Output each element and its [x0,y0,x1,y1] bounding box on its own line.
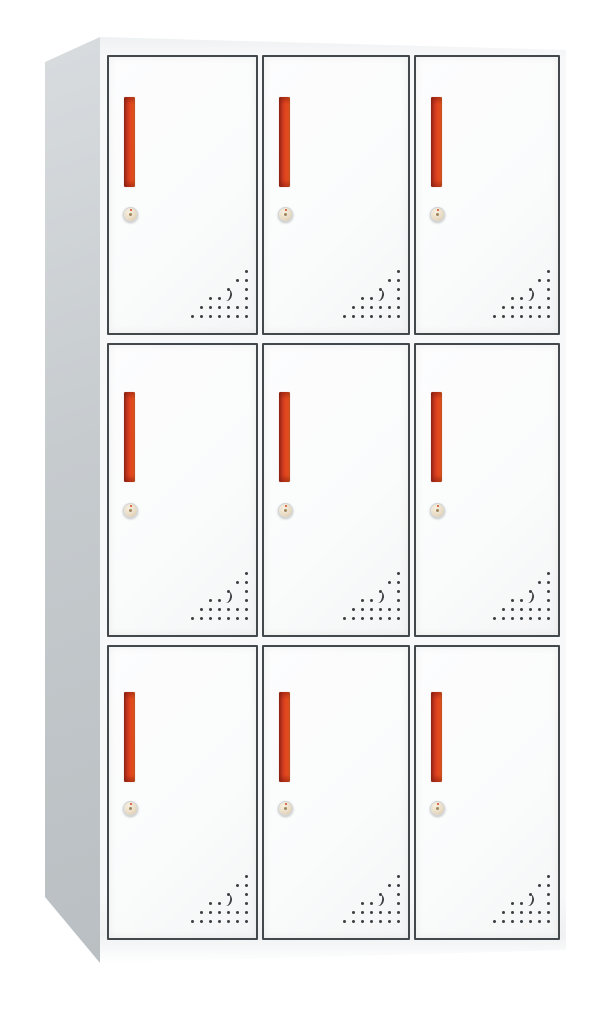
vent-hole-dot [397,893,400,896]
vent-hole-dot [370,617,373,620]
vent-hole-dot [520,920,523,923]
door-handle[interactable] [124,97,135,187]
vent-hole-dot [547,884,550,887]
lock-keyhole[interactable] [278,503,293,518]
vent-hole-dot [236,306,239,309]
vent-crescent-icon [221,288,233,302]
vent-hole-dot [547,288,550,291]
vent-hole-dot [547,270,550,273]
vent-hole-dot [511,306,514,309]
vent-hole-dot [538,617,541,620]
vent-hole-dot [227,315,230,318]
vent-hole-dot [245,590,248,593]
vent-hole-dot [209,920,212,923]
vent-hole-dot [538,884,541,887]
door-grid [0,0,605,1009]
vent-hole-dot [245,608,248,611]
lock-keyhole[interactable] [278,207,293,222]
vent-hole-dot [511,599,514,602]
vent-hole-dot [511,902,514,905]
vent-holes [343,875,400,926]
vent-hole-dot [218,911,221,914]
vent-crescent-icon [373,893,385,907]
locker-door-r1c3[interactable] [414,55,560,335]
vent-hole-dot [200,911,203,914]
locker-door-r1c1[interactable] [107,55,258,335]
vent-hole-dot [538,911,541,914]
vent-hole-dot [538,581,541,584]
vent-hole-dot [397,875,400,878]
vent-hole-dot [236,884,239,887]
vent-hole-dot [502,608,505,611]
vent-hole-dot [361,911,364,914]
vent-hole-dot [547,590,550,593]
vent-hole-dot [370,315,373,318]
vent-hole-dot [547,599,550,602]
vent-hole-dot [227,617,230,620]
vent-hole-dot [529,911,532,914]
vent-hole-dot [397,884,400,887]
vent-hole-dot [245,297,248,300]
vent-hole-dot [245,270,248,273]
vent-hole-dot [218,608,221,611]
vent-hole-dot [388,884,391,887]
vent-hole-dot [502,920,505,923]
vent-hole-dot [547,617,550,620]
vent-hole-dot [502,617,505,620]
vent-crescent-icon [523,893,535,907]
vent-holes [191,572,248,623]
vent-hole-dot [245,902,248,905]
vent-hole-dot [520,608,523,611]
vent-hole-dot [245,875,248,878]
vent-holes [493,875,550,926]
vent-hole-dot [547,315,550,318]
door-handle[interactable] [124,392,135,482]
vent-hole-dot [218,315,221,318]
vent-hole-dot [379,306,382,309]
vent-hole-dot [236,911,239,914]
vent-hole-dot [236,315,239,318]
vent-hole-dot [511,617,514,620]
door-handle[interactable] [279,692,290,782]
vent-hole-dot [361,315,364,318]
vent-hole-dot [245,572,248,575]
vent-hole-dot [379,920,382,923]
vent-hole-dot [361,306,364,309]
vent-hole-dot [520,911,523,914]
vent-hole-dot [388,911,391,914]
vent-hole-dot [547,902,550,905]
vent-hole-dot [397,581,400,584]
vent-holes [493,572,550,623]
vent-hole-dot [370,306,373,309]
vent-hole-dot [538,920,541,923]
door-handle[interactable] [124,692,135,782]
vent-hole-dot [200,617,203,620]
vent-hole-dot [520,902,523,905]
vent-hole-dot [209,306,212,309]
vent-hole-dot [209,617,212,620]
vent-hole-dot [245,599,248,602]
vent-hole-dot [547,875,550,878]
vent-hole-dot [379,617,382,620]
lock-keyhole[interactable] [430,503,445,518]
vent-hole-dot [352,306,355,309]
vent-hole-dot [520,599,523,602]
vent-hole-dot [493,617,496,620]
vent-hole-dot [370,297,373,300]
vent-hole-dot [388,315,391,318]
vent-hole-dot [502,306,505,309]
vent-hole-dot [236,581,239,584]
vent-hole-dot [200,306,203,309]
vent-hole-dot [379,315,382,318]
vent-holes [343,270,400,321]
locker-door-r2c3[interactable] [414,343,560,637]
vent-hole-dot [352,617,355,620]
vent-hole-dot [511,297,514,300]
vent-holes [493,270,550,321]
vent-hole-dot [538,608,541,611]
vent-hole-dot [397,911,400,914]
vent-hole-dot [245,920,248,923]
vent-hole-dot [361,617,364,620]
vent-hole-dot [245,288,248,291]
door-handle[interactable] [279,392,290,482]
vent-hole-dot [379,911,382,914]
door-handle[interactable] [431,692,442,782]
vent-hole-dot [236,279,239,282]
vent-hole-dot [218,617,221,620]
vent-hole-dot [397,288,400,291]
vent-hole-dot [397,590,400,593]
vent-hole-dot [343,315,346,318]
locker-door-r3c1[interactable] [107,645,258,940]
vent-hole-dot [218,599,221,602]
vent-hole-dot [397,279,400,282]
vent-hole-dot [520,297,523,300]
vent-hole-dot [361,902,364,905]
vent-hole-dot [227,911,230,914]
vent-hole-dot [388,279,391,282]
vent-hole-dot [200,920,203,923]
vent-holes [191,270,248,321]
vent-hole-dot [388,306,391,309]
vent-holes [191,875,248,926]
lock-keyhole[interactable] [430,207,445,222]
vent-crescent-icon [221,893,233,907]
vent-crescent-icon [373,590,385,604]
vent-hole-dot [529,306,532,309]
vent-hole-dot [218,306,221,309]
lock-keyhole[interactable] [278,801,293,816]
vent-hole-dot [529,617,532,620]
vent-hole-dot [209,911,212,914]
vent-hole-dot [218,297,221,300]
lock-keyhole[interactable] [123,503,138,518]
vent-hole-dot [388,617,391,620]
vent-hole-dot [236,920,239,923]
vent-hole-dot [538,306,541,309]
vent-holes [343,572,400,623]
vent-hole-dot [370,911,373,914]
vent-hole-dot [209,297,212,300]
vent-hole-dot [511,608,514,611]
locker-door-r3c3[interactable] [414,645,560,940]
vent-hole-dot [397,270,400,273]
vent-hole-dot [397,902,400,905]
vent-hole-dot [493,315,496,318]
vent-hole-dot [370,599,373,602]
vent-hole-dot [529,608,532,611]
vent-hole-dot [361,920,364,923]
vent-hole-dot [520,315,523,318]
vent-hole-dot [361,608,364,611]
vent-hole-dot [511,911,514,914]
vent-hole-dot [191,920,194,923]
vent-hole-dot [200,315,203,318]
vent-hole-dot [520,617,523,620]
locker-door-r2c2[interactable] [262,343,410,637]
vent-hole-dot [352,911,355,914]
vent-hole-dot [547,297,550,300]
vent-hole-dot [245,315,248,318]
vent-hole-dot [388,608,391,611]
vent-hole-dot [388,920,391,923]
vent-hole-dot [397,608,400,611]
vent-crescent-icon [523,288,535,302]
vent-hole-dot [245,884,248,887]
vent-hole-dot [343,920,346,923]
door-handle[interactable] [431,97,442,187]
vent-hole-dot [370,902,373,905]
vent-hole-dot [352,315,355,318]
vent-hole-dot [397,617,400,620]
vent-crescent-icon [373,288,385,302]
vent-hole-dot [538,279,541,282]
vent-hole-dot [227,608,230,611]
vent-hole-dot [547,279,550,282]
vent-hole-dot [245,581,248,584]
vent-hole-dot [245,911,248,914]
product-photo-locker-cabinet [0,0,605,1009]
vent-hole-dot [370,608,373,611]
vent-hole-dot [245,306,248,309]
vent-hole-dot [397,315,400,318]
vent-hole-dot [547,920,550,923]
locker-door-r1c2[interactable] [262,55,410,335]
vent-hole-dot [191,617,194,620]
vent-hole-dot [547,581,550,584]
vent-hole-dot [388,581,391,584]
vent-hole-dot [397,572,400,575]
vent-hole-dot [209,315,212,318]
vent-hole-dot [361,599,364,602]
vent-hole-dot [502,911,505,914]
vent-hole-dot [511,315,514,318]
vent-hole-dot [245,279,248,282]
vent-hole-dot [547,572,550,575]
vent-hole-dot [227,306,230,309]
vent-hole-dot [529,315,532,318]
door-handle[interactable] [279,97,290,187]
vent-hole-dot [397,920,400,923]
lock-keyhole[interactable] [123,207,138,222]
vent-hole-dot [547,608,550,611]
vent-hole-dot [218,920,221,923]
vent-hole-dot [493,920,496,923]
vent-hole-dot [361,297,364,300]
vent-hole-dot [209,608,212,611]
vent-hole-dot [511,920,514,923]
locker-door-r3c2[interactable] [262,645,410,940]
vent-hole-dot [370,920,373,923]
vent-hole-dot [352,608,355,611]
vent-hole-dot [209,902,212,905]
vent-hole-dot [209,599,212,602]
vent-hole-dot [379,608,382,611]
vent-hole-dot [200,608,203,611]
vent-crescent-icon [221,590,233,604]
vent-hole-dot [547,911,550,914]
vent-hole-dot [397,306,400,309]
vent-hole-dot [343,617,346,620]
vent-hole-dot [520,306,523,309]
vent-hole-dot [245,893,248,896]
vent-hole-dot [236,608,239,611]
door-handle[interactable] [431,392,442,482]
lock-keyhole[interactable] [123,801,138,816]
vent-hole-dot [236,617,239,620]
vent-crescent-icon [523,590,535,604]
vent-hole-dot [547,893,550,896]
vent-hole-dot [547,306,550,309]
vent-hole-dot [227,920,230,923]
vent-hole-dot [218,902,221,905]
vent-hole-dot [245,617,248,620]
vent-hole-dot [538,315,541,318]
vent-hole-dot [529,920,532,923]
vent-hole-dot [397,599,400,602]
vent-hole-dot [191,315,194,318]
vent-hole-dot [397,297,400,300]
vent-hole-dot [502,315,505,318]
vent-hole-dot [352,920,355,923]
locker-door-r2c1[interactable] [107,343,258,637]
lock-keyhole[interactable] [430,801,445,816]
